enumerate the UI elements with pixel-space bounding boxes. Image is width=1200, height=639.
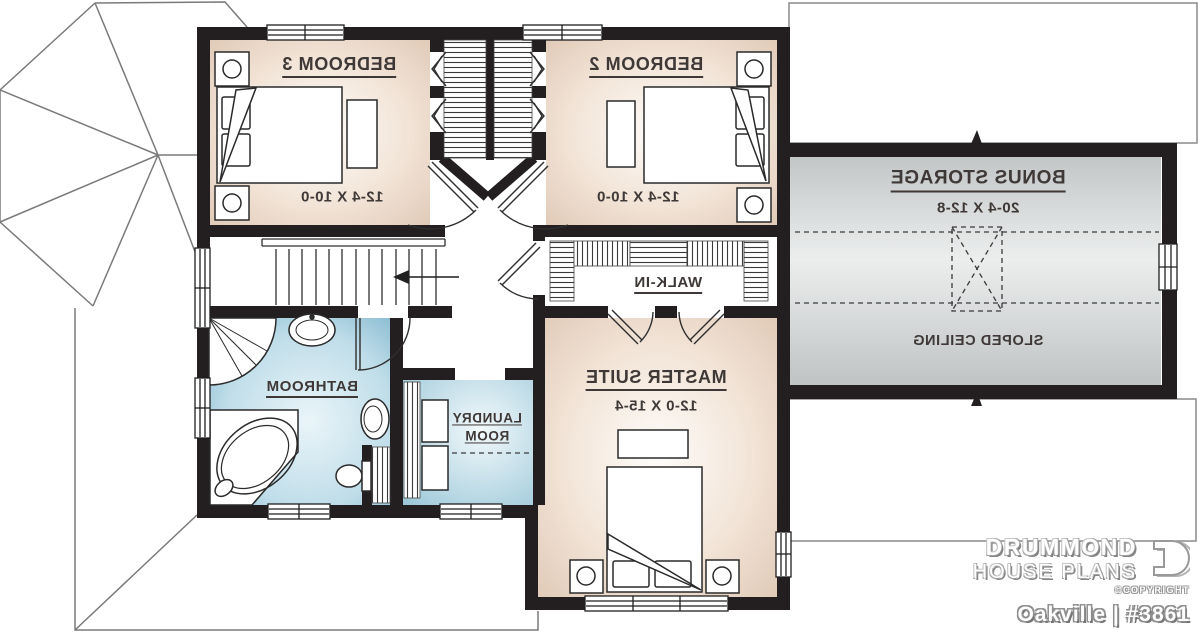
- bedroom3-dimensions: 12-4 X 10-0: [301, 189, 384, 206]
- brand-line2: HOUSE PLANS: [973, 561, 1137, 584]
- bonus-storage-label: BONUS STORAGE: [890, 168, 1065, 193]
- plan-name-number: Oakville | #3861: [973, 603, 1190, 627]
- laundry-room-label: LAUNDRY ROOM: [440, 409, 534, 444]
- dryer: [422, 446, 448, 490]
- brand-logo: DRUMMOND HOUSE PLANS ©COPYRIGHT Oakville…: [973, 534, 1190, 627]
- toilet: [336, 465, 362, 487]
- drummond-d-icon: [1144, 538, 1190, 580]
- walk-in-label: WALK-IN: [634, 274, 702, 294]
- bedroom3-label: BEDROOM 3: [282, 54, 396, 78]
- copyright-text: ©COPYRIGHT: [973, 585, 1190, 595]
- plan-name: Oakville: [1017, 603, 1106, 626]
- plan-number: #3861: [1127, 603, 1190, 626]
- bonus-storage-dimensions: 20-4 X 12-8: [937, 200, 1020, 217]
- sloped-ceiling-label: SLOPED CEILING: [913, 333, 1044, 349]
- bedroom2-dimensions: 12-4 X 10-0: [597, 189, 680, 206]
- roof-outline-right-bottom: [789, 399, 1196, 541]
- floorplan-page: BEDROOM 3 12-4 X 10-0 BEDROOM 2 12-4 X 1…: [0, 0, 1200, 639]
- bedroom2-label: BEDROOM 2: [589, 54, 703, 78]
- brand-line1: DRUMMOND: [973, 534, 1137, 561]
- plan-divider: |: [1113, 603, 1120, 626]
- bathroom-label: BATHROOM: [266, 378, 358, 398]
- brand-wordmark: DRUMMOND HOUSE PLANS: [973, 534, 1137, 584]
- pedestal-sink: [361, 399, 389, 439]
- master-suite-label: MASTER SUITE: [585, 367, 726, 391]
- master-suite-dimensions: 12-0 X 15-4: [615, 398, 698, 415]
- roof-outline-right-top: [789, 3, 1197, 143]
